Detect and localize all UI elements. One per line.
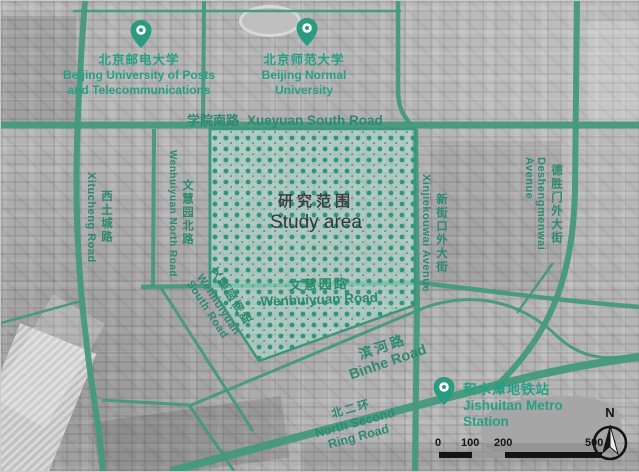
- wenhuiyuan-north-road-en: Wenhuiyuan North Road: [167, 150, 178, 277]
- study-area-label: 研究范围 Study area: [236, 193, 396, 235]
- deshengmenwai-avenue-label: Deshengmenwai Avenue 德胜门外大街: [523, 143, 564, 265]
- road-line-interchange: [517, 263, 553, 313]
- road-line-north-xinjiekouwai: [398, 1, 414, 129]
- xueyuan-south-road-en: Xueyuan South Road: [247, 113, 383, 128]
- xueyuan-south-road-label: 学院南路Xueyuan South Road: [187, 110, 383, 129]
- jishuitan-name-en-line2: Station: [463, 414, 578, 430]
- road-line-branch-west: [1, 301, 81, 323]
- wenhuiyuan-north-road-label: Wenhuiyuan North Road 文慧园北路: [167, 137, 195, 289]
- north-arrow-n: N: [605, 405, 614, 420]
- jishuitan-label: 积水潭地铁站 Jishuitan Metro Station: [463, 382, 578, 429]
- xitucheng-road-en: Xitucheng Road: [85, 172, 97, 263]
- study-area-zh: 研究范围: [236, 193, 396, 211]
- xueyuan-south-road-zh: 学院南路: [187, 113, 239, 128]
- bupt-name-zh: 北京邮电大学: [31, 53, 247, 68]
- deshengmenwai-avenue-en: Deshengmenwai Avenue: [523, 157, 547, 250]
- wenhuiyuan-north-road-zh: 文慧园北路: [179, 179, 195, 247]
- jishuitan-pin-icon: [432, 376, 456, 406]
- deshengmenwai-avenue-zh: 德胜门外大街: [548, 164, 564, 245]
- bnu-name-en-line2: University: [229, 83, 379, 98]
- bnu-label: 北京师范大学 Beijing Normal University: [229, 53, 379, 97]
- bupt-name-en-line1: Beijing University of Posts: [31, 68, 247, 83]
- bupt-label: 北京邮电大学 Beijing University of Posts and T…: [31, 53, 247, 97]
- jishuitan-name-zh: 积水潭地铁站: [463, 382, 578, 398]
- bnu-pin-icon: [295, 17, 319, 47]
- scale-tick-200: 200: [494, 437, 512, 449]
- bupt-pin-icon: [129, 19, 153, 49]
- xinjiekouwai-avenue-label: Xinjiekouwai Avenue 新街口外大街: [420, 157, 449, 309]
- jishuitan-name-en-line1: Jishuitan Metro: [463, 398, 578, 414]
- road-line-junction-west: [102, 400, 189, 405]
- scale-segment-1: [439, 452, 472, 458]
- road-line-wenhuiyuan-north: [153, 129, 154, 287]
- study-area-map: 北京邮电大学 Beijing University of Posts and T…: [0, 0, 639, 472]
- scale-segment-2: [472, 452, 505, 458]
- xinjiekouwai-avenue-en: Xinjiekouwai Avenue: [420, 174, 432, 292]
- xitucheng-road-label: Xitucheng Road 西土城路: [85, 157, 114, 277]
- scale-tick-100: 100: [461, 437, 479, 449]
- xinjiekouwai-avenue-zh: 新街口外大街: [433, 193, 449, 274]
- xitucheng-road-zh: 西土城路: [98, 190, 114, 244]
- north-arrow: N: [583, 403, 637, 467]
- study-area-en: Study area: [236, 211, 396, 235]
- bnu-name-en-line1: Beijing Normal: [229, 68, 379, 83]
- bupt-name-en-line2: and Telecommunications: [31, 83, 247, 98]
- bnu-name-zh: 北京师范大学: [229, 53, 379, 68]
- scale-tick-0: 0: [435, 437, 441, 449]
